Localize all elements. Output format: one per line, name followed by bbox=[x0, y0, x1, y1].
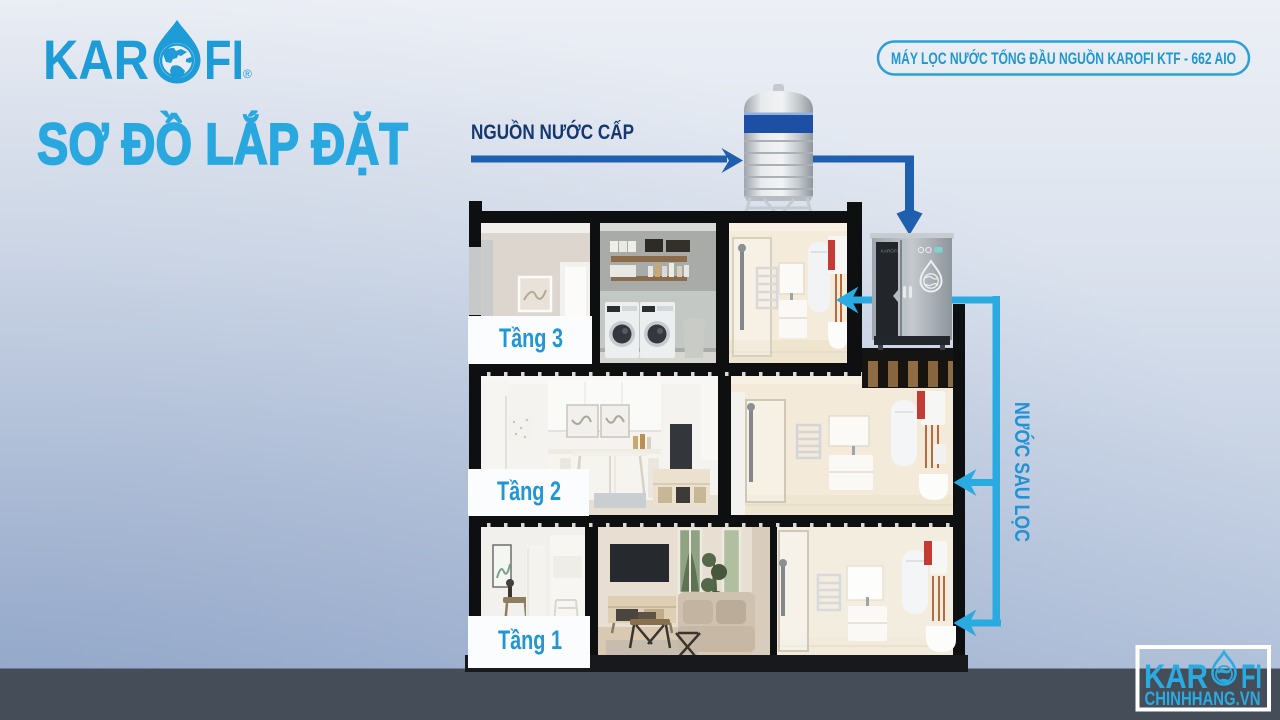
svg-text:NƯỚC SAU LỌC: NƯỚC SAU LỌC bbox=[1010, 402, 1035, 542]
svg-text:NGUỒN NƯỚC CẤP: NGUỒN NƯỚC CẤP bbox=[471, 120, 634, 144]
svg-text:KAROFI: KAROFI bbox=[881, 249, 898, 254]
svg-text:®: ® bbox=[243, 67, 252, 81]
svg-text:SƠ ĐỒ LẮP ĐẶT: SƠ ĐỒ LẮP ĐẶT bbox=[37, 112, 408, 177]
svg-text:FI: FI bbox=[204, 28, 244, 91]
svg-text:MÁY LỌC NƯỚC TỔNG ĐẦU NGUỒN KA: MÁY LỌC NƯỚC TỔNG ĐẦU NGUỒN KAROFI KTF -… bbox=[891, 49, 1236, 68]
svg-text:KAR: KAR bbox=[43, 28, 149, 91]
svg-text:CHINHHANG.VN: CHINHHANG.VN bbox=[1145, 689, 1261, 710]
svg-text:Tầng 3: Tầng 3 bbox=[499, 323, 563, 353]
svg-text:Tầng 2: Tầng 2 bbox=[497, 476, 561, 506]
svg-text:Tầng 1: Tầng 1 bbox=[498, 625, 562, 655]
